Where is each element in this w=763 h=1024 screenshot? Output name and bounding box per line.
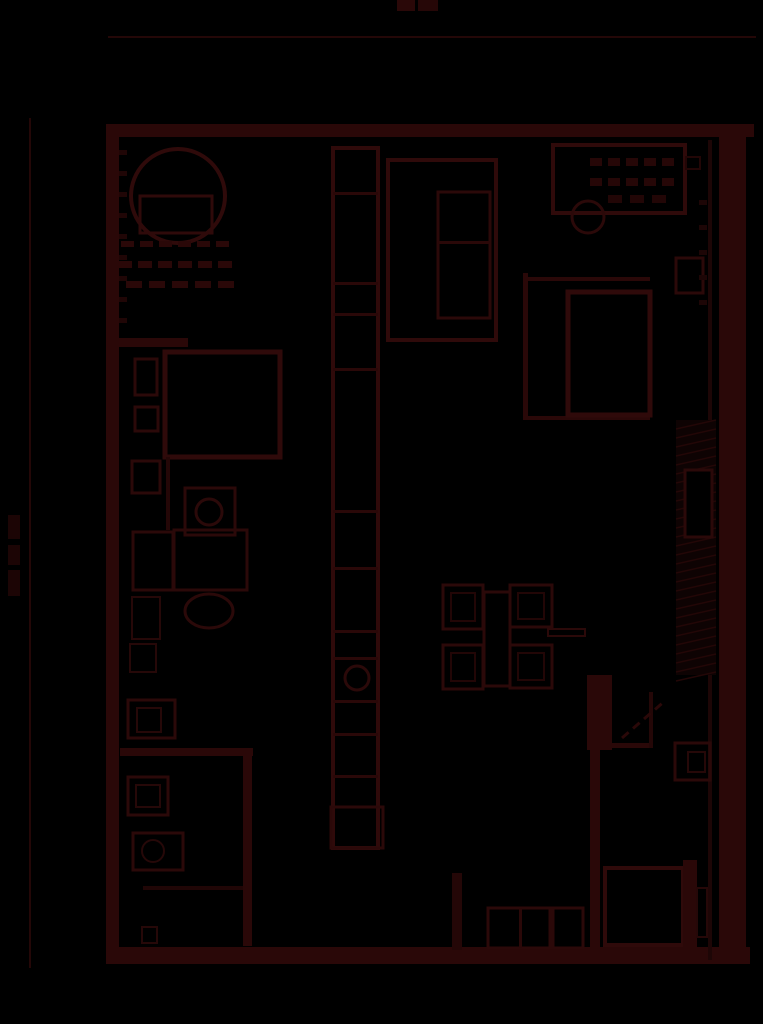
bed-pattern-row-3-dash bbox=[652, 195, 666, 203]
partition-wall-d bbox=[590, 750, 600, 950]
tile-dashes-row-3-dash bbox=[149, 281, 165, 288]
wall-niche bbox=[685, 470, 712, 537]
bed-pattern-row-1 bbox=[590, 158, 674, 166]
door-leaf-seg bbox=[622, 732, 629, 738]
wall-left bbox=[106, 124, 119, 964]
bed-pattern-row-2 bbox=[590, 178, 674, 186]
bed-pattern-row-2-dash bbox=[626, 178, 638, 186]
door-head-wall bbox=[612, 743, 653, 748]
right-wall-hatch-ticks-tick bbox=[699, 200, 707, 205]
right-wall-hatch-ticks-tick bbox=[699, 250, 707, 255]
tile-dashes-row-1-dash bbox=[140, 241, 153, 247]
wardrobe bbox=[388, 160, 496, 340]
chair-4 bbox=[510, 645, 552, 688]
left-wall-hatch-ticks-tick bbox=[119, 213, 127, 218]
cabinet-1 bbox=[133, 532, 173, 590]
kitchen-sink-bowl bbox=[142, 840, 164, 862]
partition-wall-a bbox=[118, 338, 188, 347]
left-dimension-label-2 bbox=[8, 545, 20, 565]
door-pier bbox=[587, 675, 612, 750]
top-dimension-rule bbox=[108, 36, 756, 38]
bed-pattern-row-3 bbox=[608, 195, 666, 203]
tile-dashes-row-2-dash bbox=[118, 261, 132, 268]
title-blob-2 bbox=[418, 0, 438, 11]
door-leaf bbox=[622, 704, 662, 738]
shaft-divider-11 bbox=[333, 775, 378, 778]
partition-wall-b bbox=[120, 748, 253, 756]
left-wall-hatch-ticks-tick bbox=[119, 192, 127, 197]
tile-dashes-row-2 bbox=[118, 261, 232, 268]
tile-dashes-row-2-dash bbox=[138, 261, 152, 268]
cabinet-2 bbox=[174, 530, 247, 590]
left-wall-hatch-ticks bbox=[119, 150, 127, 323]
tile-dashes-row-3-dash bbox=[172, 281, 188, 288]
wall-bottom bbox=[106, 947, 750, 964]
tile-dashes-row-3-dash bbox=[195, 281, 211, 288]
bed-pattern-row-2-dash bbox=[608, 178, 620, 186]
right-wall-hatch-ticks-tick bbox=[699, 300, 707, 305]
bed-pattern-row-2-dash bbox=[590, 178, 602, 186]
door-post bbox=[452, 873, 462, 950]
door-leaf-seg bbox=[633, 723, 640, 729]
radiator bbox=[676, 258, 703, 293]
side-bar bbox=[548, 629, 585, 636]
shaft-column bbox=[333, 148, 378, 848]
tile-dashes-row-2-dash bbox=[218, 261, 232, 268]
bed-pattern-row-1-dash bbox=[626, 158, 638, 166]
chair-2-seat bbox=[451, 653, 475, 681]
alcove-left-wall bbox=[523, 273, 528, 420]
tile-dashes-row-1-dash bbox=[216, 241, 229, 247]
tile-dashes-row-2-dash bbox=[178, 261, 192, 268]
fixture-box bbox=[185, 488, 235, 535]
tile-dashes-row-3-dash bbox=[126, 281, 142, 288]
wardrobe-divider bbox=[438, 241, 490, 244]
bed-pattern-row-3-dash bbox=[630, 195, 644, 203]
wardrobe-inner bbox=[438, 192, 490, 318]
shaft-divider-7 bbox=[333, 630, 378, 633]
bed-pattern-row-2-dash bbox=[662, 178, 674, 186]
lower-right-room bbox=[605, 868, 683, 945]
tile-dashes-row-1-dash bbox=[178, 241, 191, 247]
bed-pattern-row-1-dash bbox=[590, 158, 602, 166]
kitchen-sink bbox=[133, 833, 183, 870]
shaft-divider-2 bbox=[333, 282, 378, 285]
tile-dashes-row-1-dash bbox=[197, 241, 210, 247]
wall-notch bbox=[686, 157, 700, 169]
tile-dashes-row-2-dash bbox=[158, 261, 172, 268]
chair-2 bbox=[443, 645, 483, 689]
cabinet-3 bbox=[132, 597, 160, 639]
closet-stem-line bbox=[166, 457, 170, 530]
chair-1 bbox=[443, 585, 483, 629]
fixture-box-circle bbox=[196, 499, 222, 525]
washing-machine-drum bbox=[137, 708, 161, 732]
stove-inner bbox=[136, 785, 160, 807]
cabinet-4 bbox=[130, 644, 156, 672]
left-wall-hatch-ticks-tick bbox=[119, 171, 127, 176]
shaft-foot bbox=[331, 807, 383, 848]
bed-pattern-row-2-dash bbox=[644, 178, 656, 186]
left-wall-hatch-ticks-tick bbox=[119, 318, 127, 323]
wall-shelf-2 bbox=[135, 407, 158, 431]
low-cabinet-2 bbox=[553, 908, 583, 948]
shaft-circle bbox=[345, 666, 369, 690]
counter-line bbox=[143, 886, 243, 890]
dining-table bbox=[484, 592, 510, 686]
oval-fixture bbox=[185, 594, 233, 628]
tile-dashes-row-1-dash bbox=[121, 241, 134, 247]
shaft-divider-3 bbox=[333, 313, 378, 316]
left-dimension-line bbox=[29, 118, 31, 968]
title-blob-1 bbox=[397, 0, 415, 11]
wall-panel-inner bbox=[688, 752, 705, 772]
left-wall-hatch-ticks-tick bbox=[119, 150, 127, 155]
low-cabinet-divider bbox=[519, 908, 522, 948]
shaft-divider-1 bbox=[333, 192, 378, 195]
wall-shelf-1 bbox=[135, 359, 157, 395]
tile-dashes-row-2-dash bbox=[198, 261, 212, 268]
bed-pattern-row-3-dash bbox=[608, 195, 622, 203]
basin-counter bbox=[140, 196, 212, 233]
left-wall-hatch-ticks-tick bbox=[119, 234, 127, 239]
shaft-divider-10 bbox=[333, 733, 378, 736]
tile-dashes-row-1-dash bbox=[159, 241, 172, 247]
round-stool bbox=[572, 201, 604, 233]
floorplan-sheet bbox=[0, 0, 763, 1024]
chair-4-seat bbox=[518, 653, 544, 680]
closet-square bbox=[165, 352, 280, 457]
left-wall-hatch-ticks-tick bbox=[119, 255, 127, 260]
right-wall-hatch-ticks-tick bbox=[699, 275, 707, 280]
left-wall-hatch-ticks-tick bbox=[119, 276, 127, 281]
shower-square bbox=[568, 292, 650, 415]
shaft-divider-6 bbox=[333, 567, 378, 570]
wall-top bbox=[108, 124, 754, 137]
small-box bbox=[142, 927, 157, 943]
floor-plan-canvas bbox=[0, 0, 763, 1024]
shaft-divider-9 bbox=[333, 700, 378, 703]
partition-wall-c bbox=[243, 756, 252, 946]
left-wall-hatch-ticks-tick bbox=[119, 297, 127, 302]
tile-dashes-row-3 bbox=[126, 281, 234, 288]
right-wall-hatch-ticks-tick bbox=[699, 225, 707, 230]
tile-dashes-row-3-dash bbox=[218, 281, 234, 288]
wall-shelf-3 bbox=[132, 461, 160, 493]
door-jamb bbox=[649, 692, 653, 748]
door-leaf-seg bbox=[655, 704, 662, 710]
chair-3-seat bbox=[518, 593, 544, 619]
bed-pattern-row-1-dash bbox=[644, 158, 656, 166]
left-dimension-label-3 bbox=[8, 570, 20, 596]
wall-cavity-hatch bbox=[676, 420, 716, 681]
left-dimension-label-1 bbox=[8, 515, 20, 539]
wall-right bbox=[719, 124, 746, 964]
lower-right-band bbox=[683, 860, 697, 948]
shaft-divider-5 bbox=[333, 510, 378, 513]
alcove-top-line bbox=[528, 277, 650, 281]
chair-1-seat bbox=[451, 593, 475, 621]
bed-pattern-row-1-dash bbox=[608, 158, 620, 166]
narrow-box bbox=[697, 888, 707, 937]
stove bbox=[128, 777, 168, 815]
shaft-divider-4 bbox=[333, 368, 378, 371]
chair-3 bbox=[510, 585, 552, 627]
shaft-divider-8 bbox=[333, 657, 378, 660]
bed-pattern-row-1-dash bbox=[662, 158, 674, 166]
